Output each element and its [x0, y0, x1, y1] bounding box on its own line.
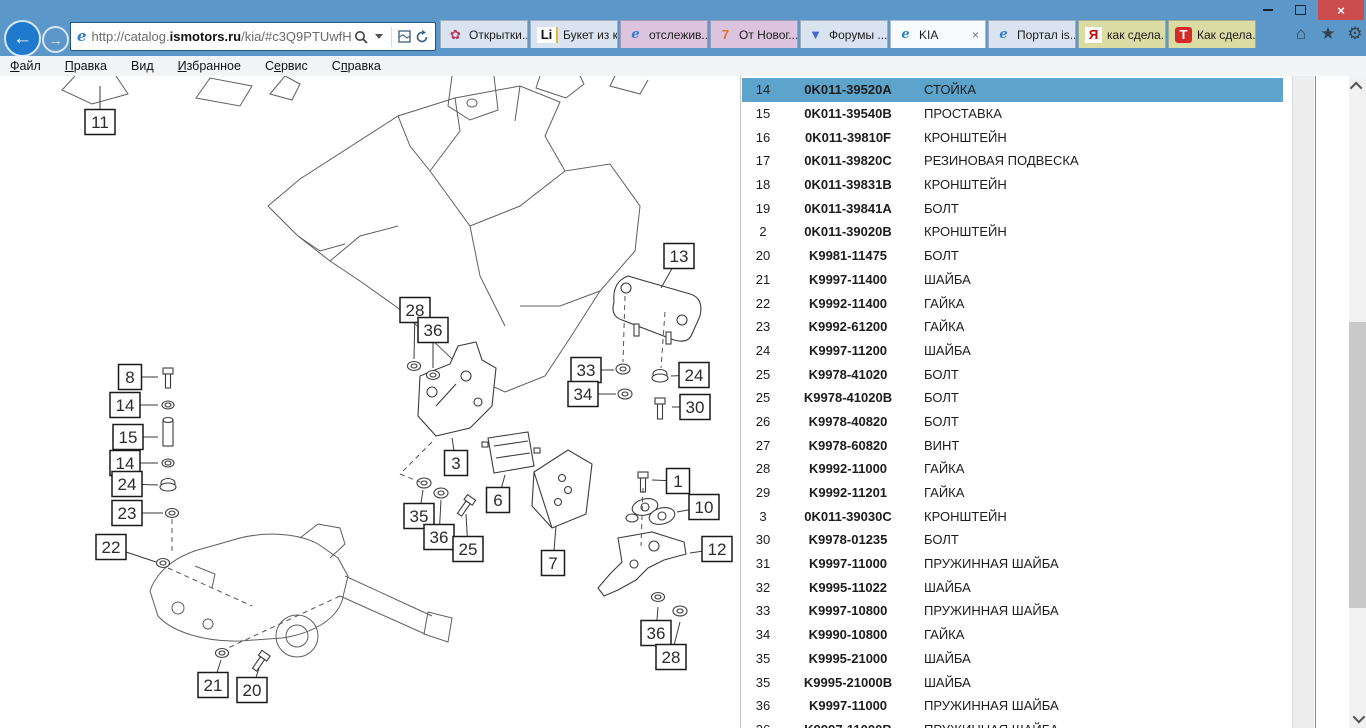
table-row[interactable]: 36K9997-11000BПРУЖИННАЯ ШАЙБА [742, 718, 1283, 728]
diagram-top-partial-parts [62, 76, 648, 120]
cell: K9992-11000 [784, 461, 912, 476]
cell: 0K011-39841A [784, 201, 912, 216]
table-row[interactable]: 20K9981-11475БОЛТ [742, 244, 1283, 268]
parts-table: 140K011-39520AСТОЙКА150K011-39540BПРОСТА… [742, 76, 1283, 728]
table-row[interactable]: 35K9995-21000BШАЙБА [742, 670, 1283, 694]
callout-22[interactable]: 22 [96, 535, 156, 563]
svg-text:28: 28 [662, 648, 681, 667]
table-row[interactable]: 160K011-39810FКРОНШТЕЙН [742, 125, 1283, 149]
title-bar: × [0, 0, 1366, 20]
svg-text:23: 23 [118, 504, 137, 523]
svg-text:36: 36 [647, 624, 666, 643]
svg-text:13: 13 [670, 247, 689, 266]
callout-33[interactable]: 33 [571, 358, 614, 383]
cell: 28 [742, 461, 784, 476]
tab-label: отслежив... [649, 28, 708, 42]
scrollbar-thumb[interactable] [1349, 322, 1366, 608]
callout-12[interactable]: 12 [690, 537, 732, 562]
callout-23[interactable]: 23 [112, 501, 163, 526]
restore-icon [1295, 5, 1306, 15]
tab-6[interactable]: eПортал is... [988, 20, 1076, 48]
cell: ШАЙБА [912, 651, 1283, 666]
cell: K9997-10800 [784, 603, 912, 618]
cell: 32 [742, 580, 784, 595]
command-icons: ⌂ ★ ⚙ [1292, 24, 1364, 44]
settings-gear-icon[interactable]: ⚙ [1346, 24, 1364, 44]
table-row[interactable]: 180K011-39831BКРОНШТЕЙН [742, 173, 1283, 197]
cell: 23 [742, 319, 784, 334]
cell: 0K011-39030C [784, 509, 912, 524]
menu-item-5[interactable]: Справка [332, 59, 381, 73]
tab-8[interactable]: ТКак сдела... [1168, 20, 1256, 48]
cell: K9992-11400 [784, 296, 912, 311]
svg-text:15: 15 [119, 428, 138, 447]
svg-text:21: 21 [204, 676, 223, 695]
callout-11[interactable]: 11 [85, 86, 115, 135]
cell: 25 [742, 367, 784, 382]
table-row[interactable]: 24K9997-11200ШАЙБА [742, 339, 1283, 363]
cell: K9978-01235 [784, 532, 912, 547]
bracket-3-drawing [418, 342, 496, 436]
cell: K9978-40820 [784, 414, 912, 429]
tab-7[interactable]: Якак сдела... [1078, 20, 1166, 48]
cell: СТОЙКА [912, 82, 1283, 97]
svg-text:20: 20 [243, 681, 262, 700]
block-7-drawing [532, 450, 592, 528]
callout-14[interactable]: 14 [110, 393, 158, 418]
home-icon[interactable]: ⌂ [1292, 24, 1310, 44]
table-row[interactable]: 150K011-39540BПРОСТАВКА [742, 102, 1283, 126]
svg-text:34: 34 [574, 385, 593, 404]
minimize-icon [1263, 9, 1273, 11]
vertical-scrollbar[interactable] [1349, 76, 1366, 728]
cell: 27 [742, 438, 784, 453]
tab-strip: ✿Открытки...LiБукет из к...eотслежив...7… [440, 20, 1256, 49]
table-row[interactable]: 28K9992-11000ГАЙКА [742, 457, 1283, 481]
cell: K9997-11000B [784, 722, 912, 728]
svg-text:6: 6 [493, 491, 502, 510]
svg-text:24: 24 [118, 475, 137, 494]
bracket-12-drawing [598, 532, 686, 596]
table-row[interactable]: 33K9997-10800ПРУЖИННАЯ ШАЙБА [742, 599, 1283, 623]
cell: K9978-41020 [784, 367, 912, 382]
cell: 0K011-39831B [784, 177, 912, 192]
cell: 24 [742, 343, 784, 358]
cell: K9997-11000 [784, 698, 912, 713]
callout-35[interactable]: 35 [404, 490, 434, 529]
ie-favicon: e [627, 27, 644, 43]
svg-text:14: 14 [116, 396, 135, 415]
cell: БОЛТ [912, 532, 1283, 547]
cell: БОЛТ [912, 390, 1283, 405]
svg-text:30: 30 [686, 398, 705, 417]
minimize-button[interactable] [1252, 0, 1284, 20]
cell: КРОНШТЕЙН [912, 130, 1283, 145]
cell: K9997-11200 [784, 343, 912, 358]
search-icon[interactable] [352, 26, 370, 48]
table-row[interactable]: 25K9978-41020БОЛТ [742, 362, 1283, 386]
cell: K9997-11000 [784, 556, 912, 571]
cell: 18 [742, 177, 784, 192]
cell: БОЛТ [912, 414, 1283, 429]
browser-window: × ← → e http://catalog.ismotors.ru/kia/#… [0, 0, 1366, 728]
cell: K9995-21000B [784, 675, 912, 690]
seven-favicon: 7 [717, 27, 734, 43]
cell: 14 [742, 82, 784, 97]
tab-label: Портал is... [1017, 28, 1076, 42]
cell: ГАЙКА [912, 627, 1283, 642]
callout-7[interactable]: 7 [542, 526, 565, 576]
cell: 25 [742, 390, 784, 405]
cell: 19 [742, 201, 784, 216]
restore-button[interactable] [1284, 0, 1316, 20]
back-button[interactable]: ← [4, 20, 41, 57]
cell: 36 [742, 722, 784, 728]
callout-1[interactable]: 1 [652, 469, 690, 494]
engine-block-drawing [268, 86, 640, 392]
cell: ШАЙБА [912, 272, 1283, 287]
callout-24[interactable]: 24 [671, 363, 709, 388]
tab-active-5[interactable]: eKIA× [890, 20, 986, 48]
cell: РЕЗИНОВАЯ ПОДВЕСКА [912, 153, 1283, 168]
svg-text:36: 36 [430, 528, 449, 547]
table-row[interactable]: 25K9978-41020BБОЛТ [742, 386, 1283, 410]
tab-0[interactable]: ✿Открытки... [440, 20, 528, 48]
callout-21[interactable]: 21 [198, 660, 228, 698]
ie-favicon: e [897, 27, 914, 43]
cell: 34 [742, 627, 784, 642]
cell: K9978-41020B [784, 390, 912, 405]
table-row[interactable]: 170K011-39820CРЕЗИНОВАЯ ПОДВЕСКА [742, 149, 1283, 173]
callout-30[interactable]: 30 [672, 395, 710, 420]
svg-text:33: 33 [577, 361, 596, 380]
forum-favicon: ▼ [807, 27, 824, 43]
cell: 21 [742, 272, 784, 287]
cell: 15 [742, 106, 784, 121]
svg-text:12: 12 [708, 540, 727, 559]
li-favicon: Li [537, 27, 558, 43]
menu-item-4[interactable]: Сервис [265, 59, 308, 73]
svg-text:24: 24 [685, 366, 704, 385]
cell: 2 [742, 224, 784, 239]
callout-25[interactable]: 25 [453, 514, 483, 562]
yandex-favicon: Я [1085, 27, 1102, 43]
table-row[interactable]: 22K9992-11400ГАЙКА [742, 291, 1283, 315]
redt-favicon: Т [1175, 27, 1192, 43]
cell: КРОНШТЕЙН [912, 509, 1283, 524]
ie-page-icon: e [77, 29, 87, 44]
cell: 16 [742, 130, 784, 145]
svg-text:25: 25 [459, 540, 478, 559]
tab-label: как сдела... [1107, 28, 1166, 42]
table-row[interactable]: 27K9978-60820ВИНТ [742, 433, 1283, 457]
flower-favicon: ✿ [447, 27, 464, 43]
table-row[interactable]: 30K011-39030CКРОНШТЕЙН [742, 504, 1283, 528]
table-row[interactable]: 190K011-39841AБОЛТ [742, 196, 1283, 220]
table-row[interactable]: 140K011-39520AСТОЙКА [742, 78, 1283, 102]
table-row[interactable]: 35K9995-21000ШАЙБА [742, 647, 1283, 671]
table-row[interactable]: 29K9992-11201ГАЙКА [742, 481, 1283, 505]
scroll-up-arrow[interactable] [1349, 76, 1366, 96]
tab-label: KIA [919, 28, 938, 42]
cell: K9992-11201 [784, 485, 912, 500]
scroll-down-arrow[interactable] [1349, 708, 1366, 728]
cell: 22 [742, 296, 784, 311]
tab-2[interactable]: eотслежив... [620, 20, 708, 48]
menu-item-1[interactable]: Правка [65, 59, 107, 73]
callout-6[interactable]: 6 [487, 475, 510, 513]
svg-text:1: 1 [673, 472, 682, 491]
tab-1[interactable]: LiБукет из к... [530, 20, 618, 48]
cell: ШАЙБА [912, 580, 1283, 595]
cell: 31 [742, 556, 784, 571]
cell: 20 [742, 248, 784, 263]
ie-favicon: e [995, 27, 1012, 43]
forward-button[interactable]: → [42, 26, 69, 53]
table-row[interactable]: 32K9995-11022ШАЙБА [742, 575, 1283, 599]
cell: K9997-11400 [784, 272, 912, 287]
table-row[interactable]: 31K9997-11000ПРУЖИННАЯ ШАЙБА [742, 552, 1283, 576]
page-edge-line [1315, 76, 1316, 728]
svg-text:11: 11 [91, 113, 109, 132]
cell: 0K011-39020B [784, 224, 912, 239]
callout-24[interactable]: 24 [112, 472, 158, 497]
tab-4[interactable]: ▼Форумы ... [800, 20, 888, 48]
cell: K9981-11475 [784, 248, 912, 263]
cell: ПРОСТАВКА [912, 106, 1283, 121]
page-content: 1181415142423222120283633536256713333424… [0, 76, 1366, 728]
callout-20[interactable]: 20 [237, 668, 267, 703]
callout-3[interactable]: 3 [445, 438, 468, 476]
differential-drawing [150, 524, 452, 657]
cell: ПРУЖИННАЯ ШАЙБА [912, 698, 1283, 713]
cell: ШАЙБА [912, 343, 1283, 358]
cell: ВИНТ [912, 438, 1283, 453]
svg-text:7: 7 [548, 554, 557, 573]
menu-item-2[interactable]: Вид [131, 59, 154, 73]
callout-34[interactable]: 34 [568, 382, 616, 407]
cell: 17 [742, 153, 784, 168]
cell: K9992-61200 [784, 319, 912, 334]
navigation-bar: ← → e http://catalog.ismotors.ru/kia/#c3… [0, 20, 1366, 56]
callout-8[interactable]: 8 [119, 365, 159, 390]
url-text[interactable]: http://catalog.ismotors.ru/kia/#c3Q9PTUw… [92, 29, 352, 44]
address-bar[interactable]: e http://catalog.ismotors.ru/kia/#c3Q9PT… [70, 22, 436, 51]
mount-13-drawing [613, 276, 701, 344]
close-button[interactable]: × [1318, 0, 1364, 20]
tab-label: От Новог... [739, 28, 798, 42]
cell: K9990-10800 [784, 627, 912, 642]
table-row[interactable]: 20K011-39020BКРОНШТЕЙН [742, 220, 1283, 244]
cell: ПРУЖИННАЯ ШАЙБА [912, 722, 1283, 728]
cell: КРОНШТЕЙН [912, 224, 1283, 239]
cell: 0K011-39820C [784, 153, 912, 168]
cell: 33 [742, 603, 784, 618]
cell: 35 [742, 651, 784, 666]
cell: БОЛТ [912, 201, 1283, 216]
table-row[interactable]: 21K9997-11400ШАЙБА [742, 268, 1283, 292]
pane-divider [740, 76, 741, 728]
table-scroll-gutter [1292, 76, 1314, 728]
menu-item-0[interactable]: Файл [10, 59, 41, 73]
cell: БОЛТ [912, 367, 1283, 382]
cell: 0K011-39810F [784, 130, 912, 145]
cell: K9995-21000 [784, 651, 912, 666]
favorites-star-icon[interactable]: ★ [1319, 24, 1337, 44]
tab-label: Букет из к... [563, 28, 618, 42]
table-row[interactable]: 26K9978-40820БОЛТ [742, 410, 1283, 434]
svg-text:3: 3 [451, 454, 460, 473]
cell: 29 [742, 485, 784, 500]
mount-6-drawing [482, 432, 540, 473]
bracket-10-drawing [626, 496, 677, 527]
cell: ГАЙКА [912, 485, 1283, 500]
cell: ГАЙКА [912, 319, 1283, 334]
tab-label: Форумы ... [829, 28, 887, 42]
tab-label: Как сдела... [1197, 28, 1256, 42]
address-bar-separator [391, 27, 392, 47]
table-row[interactable]: 23K9992-61200ГАЙКА [742, 315, 1283, 339]
cell: КРОНШТЕЙН [912, 177, 1283, 192]
cell: 0K011-39540B [784, 106, 912, 121]
table-row[interactable]: 30K9978-01235БОЛТ [742, 528, 1283, 552]
cell: K9978-60820 [784, 438, 912, 453]
cell: 30 [742, 532, 784, 547]
cell: 36 [742, 698, 784, 713]
tab-3[interactable]: 7От Новог... [710, 20, 798, 48]
svg-text:14: 14 [116, 454, 135, 473]
refresh-icon[interactable] [413, 26, 431, 48]
tab-close-icon[interactable]: × [968, 28, 979, 42]
parts-diagram: 1181415142423222120283633536256713333424… [0, 76, 740, 728]
table-row[interactable]: 34K9990-10800ГАЙКА [742, 623, 1283, 647]
svg-text:10: 10 [695, 498, 714, 517]
cell: ГАЙКА [912, 296, 1283, 311]
compatibility-view-icon[interactable] [395, 26, 413, 48]
cell: ПРУЖИННАЯ ШАЙБА [912, 603, 1283, 618]
search-dropdown-icon[interactable] [370, 26, 388, 48]
cell: ПРУЖИННАЯ ШАЙБА [912, 556, 1283, 571]
callout-36[interactable]: 36 [418, 318, 448, 369]
cell: 0K011-39520A [784, 82, 912, 97]
callout-15[interactable]: 15 [113, 425, 158, 450]
callout-10[interactable]: 10 [677, 495, 719, 520]
menu-item-3[interactable]: Избранное [178, 59, 241, 73]
tab-label: Открытки... [469, 28, 528, 42]
cell: ШАЙБА [912, 675, 1283, 690]
menu-bar: ФайлПравкаВидИзбранноеСервисСправка [0, 56, 1366, 77]
cell: K9995-11022 [784, 580, 912, 595]
svg-text:36: 36 [424, 321, 443, 340]
cell: 26 [742, 414, 784, 429]
callout-13[interactable]: 13 [661, 244, 694, 289]
callout-36[interactable]: 36 [641, 607, 671, 646]
cell: ГАЙКА [912, 461, 1283, 476]
svg-text:35: 35 [410, 507, 429, 526]
table-row[interactable]: 36K9997-11000ПРУЖИННАЯ ШАЙБА [742, 694, 1283, 718]
svg-text:22: 22 [102, 538, 121, 557]
cell: 35 [742, 675, 784, 690]
svg-text:8: 8 [125, 368, 134, 387]
cell: 3 [742, 509, 784, 524]
cell: БОЛТ [912, 248, 1283, 263]
